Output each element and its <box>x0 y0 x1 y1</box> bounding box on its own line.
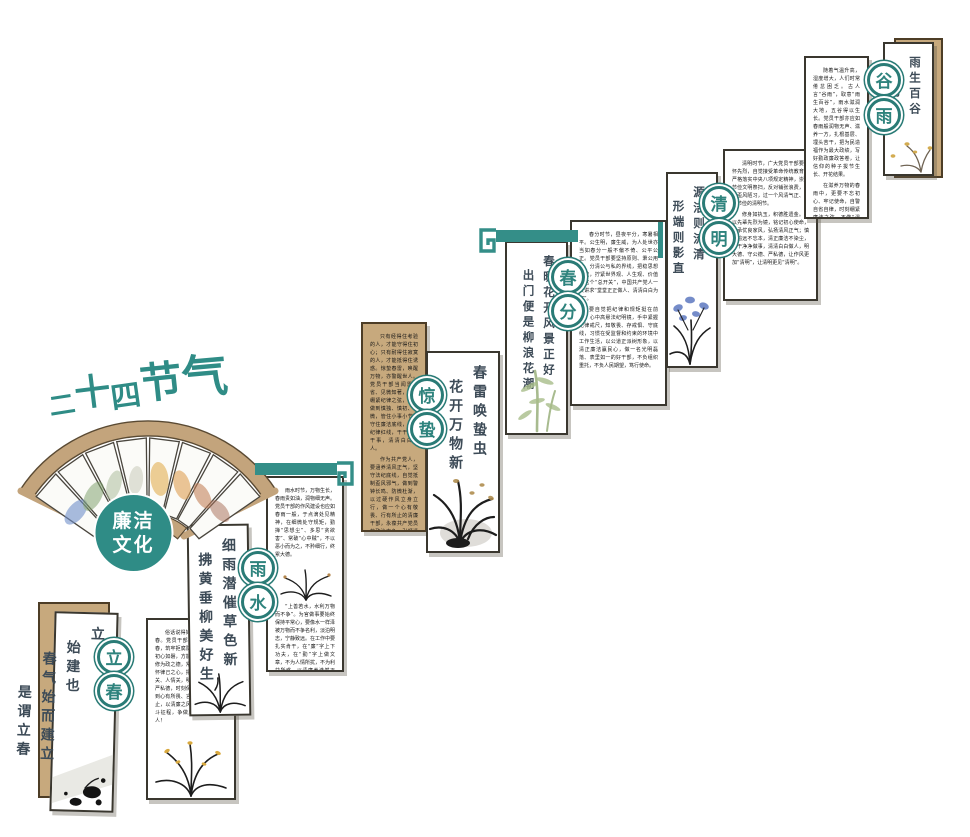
flower-sprig-painting <box>885 130 932 174</box>
medallion-line2: 文化 <box>112 533 154 556</box>
term-char: 春 <box>560 264 577 289</box>
term-char: 清 <box>711 190 728 215</box>
paragraph: 在滋养万物的春雨中，更要不忘初心、牢记使命，自警自省自律，时刻绷紧廉洁之弦，不做… <box>813 182 860 217</box>
title-char: 气 <box>179 339 231 409</box>
yushui-circle-1: 雨 <box>241 551 275 585</box>
jingzhe-circle-1: 惊 <box>410 378 444 412</box>
guyu-circle-2: 雨 <box>867 98 901 132</box>
term-char: 立 <box>106 644 123 669</box>
paragraph: 随着气温升高，湿度增大，人们时常倦怠困乏。古人言“谷雨”，取意“雨生百谷”，雨水… <box>813 67 860 179</box>
title-char: 四 <box>108 370 144 418</box>
title-char: 节 <box>137 347 185 412</box>
term-char: 明 <box>711 225 728 250</box>
term-char: 惊 <box>419 382 436 407</box>
page-title: 二十四节气 <box>46 347 229 422</box>
term-char: 蛰 <box>419 416 436 441</box>
culture-wall: 二十四节气 <box>0 0 970 837</box>
integrity-medallion <box>95 494 173 572</box>
qingming-circle-1: 清 <box>702 186 736 220</box>
term-char: 春 <box>106 678 123 703</box>
title-char: 十 <box>71 361 113 417</box>
meander-bar-icon <box>478 227 578 257</box>
meander-bar-icon <box>255 460 355 490</box>
term-char: 雨 <box>250 555 267 580</box>
medallion-line1: 廉洁 <box>112 509 154 532</box>
term-char: 分 <box>560 298 577 323</box>
teal-accent-bar <box>658 222 663 258</box>
qingming-circle-2: 明 <box>702 221 736 255</box>
yushui-circle-2: 水 <box>241 585 275 619</box>
guyu-circle-1: 谷 <box>867 63 901 97</box>
jingzhe-circle-2: 蛰 <box>410 412 444 446</box>
chunfen-circle-1: 春 <box>551 260 585 294</box>
chunfen-circle-2: 分 <box>551 294 585 328</box>
title-char: 二 <box>46 383 77 424</box>
lichun-circle-1: 立 <box>97 640 131 674</box>
guyu-article: 随着气温升高，湿度增大，人们时常倦怠困乏。古人言“谷雨”，取意“雨生百谷”，雨水… <box>806 58 867 217</box>
term-char: 谷 <box>876 67 893 92</box>
term-char: 雨 <box>876 102 893 127</box>
term-char: 水 <box>250 589 267 614</box>
guyu-article-panel: 随着气温升高，湿度增大，人们时常倦怠困乏。古人言“谷雨”，取意“雨生百谷”，雨水… <box>804 56 869 219</box>
lichun-circle-2: 春 <box>97 674 131 708</box>
